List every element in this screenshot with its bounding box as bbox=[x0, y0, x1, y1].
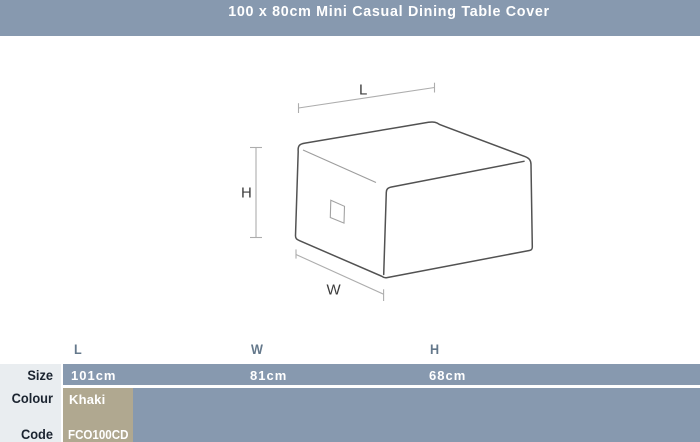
svg-text:W: W bbox=[327, 282, 342, 299]
svg-text:H: H bbox=[241, 185, 252, 202]
svg-text:L: L bbox=[359, 82, 367, 99]
